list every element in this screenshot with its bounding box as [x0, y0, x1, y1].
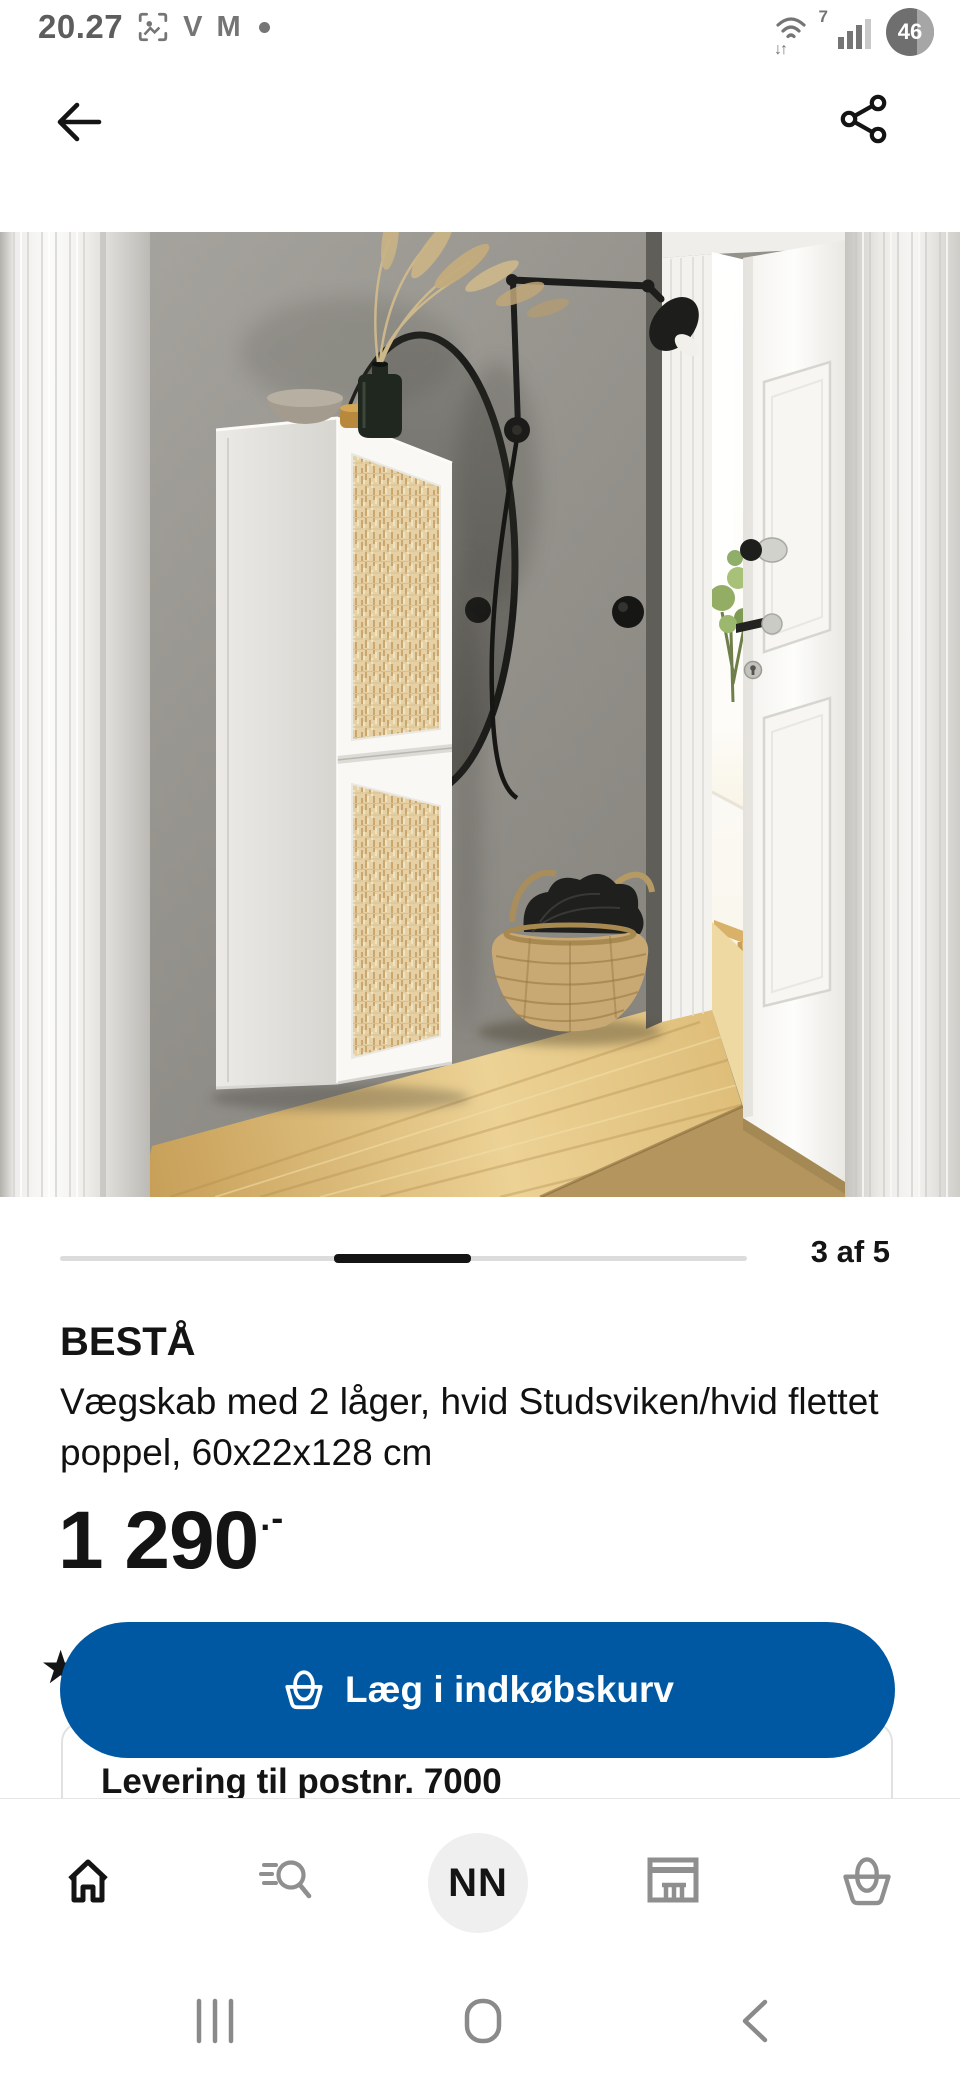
door-keyhole [745, 662, 762, 679]
notification-dot-icon [259, 22, 270, 33]
product-price: 1 290.- [58, 1494, 282, 1588]
open-door [736, 240, 845, 1194]
rattan-door-lower [352, 784, 440, 1058]
status-bar: 20.27 V M 7 ↓↑ [0, 0, 960, 62]
wifi-status-icon: 7 ↓↑ [772, 9, 828, 55]
signal-strength-icon [838, 10, 876, 54]
carousel-position-label: 3 af 5 [811, 1234, 890, 1270]
add-to-cart-label: Læg i indkøbskurv [345, 1669, 674, 1711]
android-back-button[interactable] [737, 1998, 773, 2044]
product-title: BESTÅ [60, 1320, 196, 1365]
wifi-generation-badge: 7 [819, 7, 828, 27]
carousel-progress-indicator[interactable] [334, 1254, 471, 1263]
store-icon [647, 1857, 699, 1905]
android-home-button[interactable] [461, 1998, 505, 2044]
product-detail-screen: 20.27 V M 7 ↓↑ [0, 0, 960, 2080]
profile-initials: NN [448, 1861, 508, 1906]
app-header [0, 62, 960, 180]
bottom-nav: NN [0, 1798, 960, 1963]
battery-percent: 46 [886, 8, 934, 56]
battery-icon: 46 [886, 8, 934, 56]
delivery-title: Levering til postnr. 7000 [101, 1762, 502, 1802]
android-navigation-bar [0, 1962, 960, 2080]
product-description: Vægskab med 2 låger, hvid Studsviken/hvi… [60, 1376, 880, 1478]
screenshot-notification-icon [137, 11, 169, 43]
add-to-cart-button[interactable]: Læg i indkøbskurv [60, 1622, 895, 1758]
wall-cabinet [210, 418, 470, 1111]
share-icon [838, 93, 890, 145]
home-icon [62, 1855, 114, 1907]
carousel-progress[interactable] [60, 1256, 747, 1261]
rattan-door-upper [352, 454, 440, 740]
network-traffic-arrows-icon: ↓↑ [774, 41, 786, 59]
v-app-notification-icon: V [183, 11, 202, 44]
android-home-icon [461, 1998, 505, 2044]
android-back-icon [737, 1998, 773, 2044]
nav-home-button[interactable] [62, 1855, 114, 1907]
right-door-casing [845, 232, 960, 1197]
basket-icon [281, 1667, 327, 1713]
back-arrow-icon [53, 98, 103, 146]
door-jamb [662, 254, 712, 1022]
cart-basket-icon [839, 1855, 895, 1907]
left-door-casing [0, 232, 150, 1197]
back-button[interactable] [52, 96, 104, 148]
price-value: 1 290 [58, 1495, 258, 1586]
wall-knob [612, 596, 644, 628]
recents-icon [193, 1998, 237, 2044]
android-recents-button[interactable] [193, 1998, 237, 2044]
price-suffix: .- [260, 1497, 284, 1538]
share-button[interactable] [838, 93, 890, 145]
product-photo[interactable] [0, 232, 960, 1197]
nav-store-button[interactable] [647, 1857, 699, 1905]
cabinet-side [216, 418, 337, 1088]
clock: 20.27 [38, 8, 123, 46]
nav-search-button[interactable] [258, 1855, 314, 1907]
product-photo-illustration [0, 232, 960, 1197]
gmail-notification-icon: M [216, 11, 240, 44]
nav-cart-button[interactable] [839, 1855, 895, 1907]
door-knob [740, 538, 787, 562]
search-icon [258, 1855, 314, 1907]
nav-profile-button[interactable]: NN [428, 1833, 528, 1933]
